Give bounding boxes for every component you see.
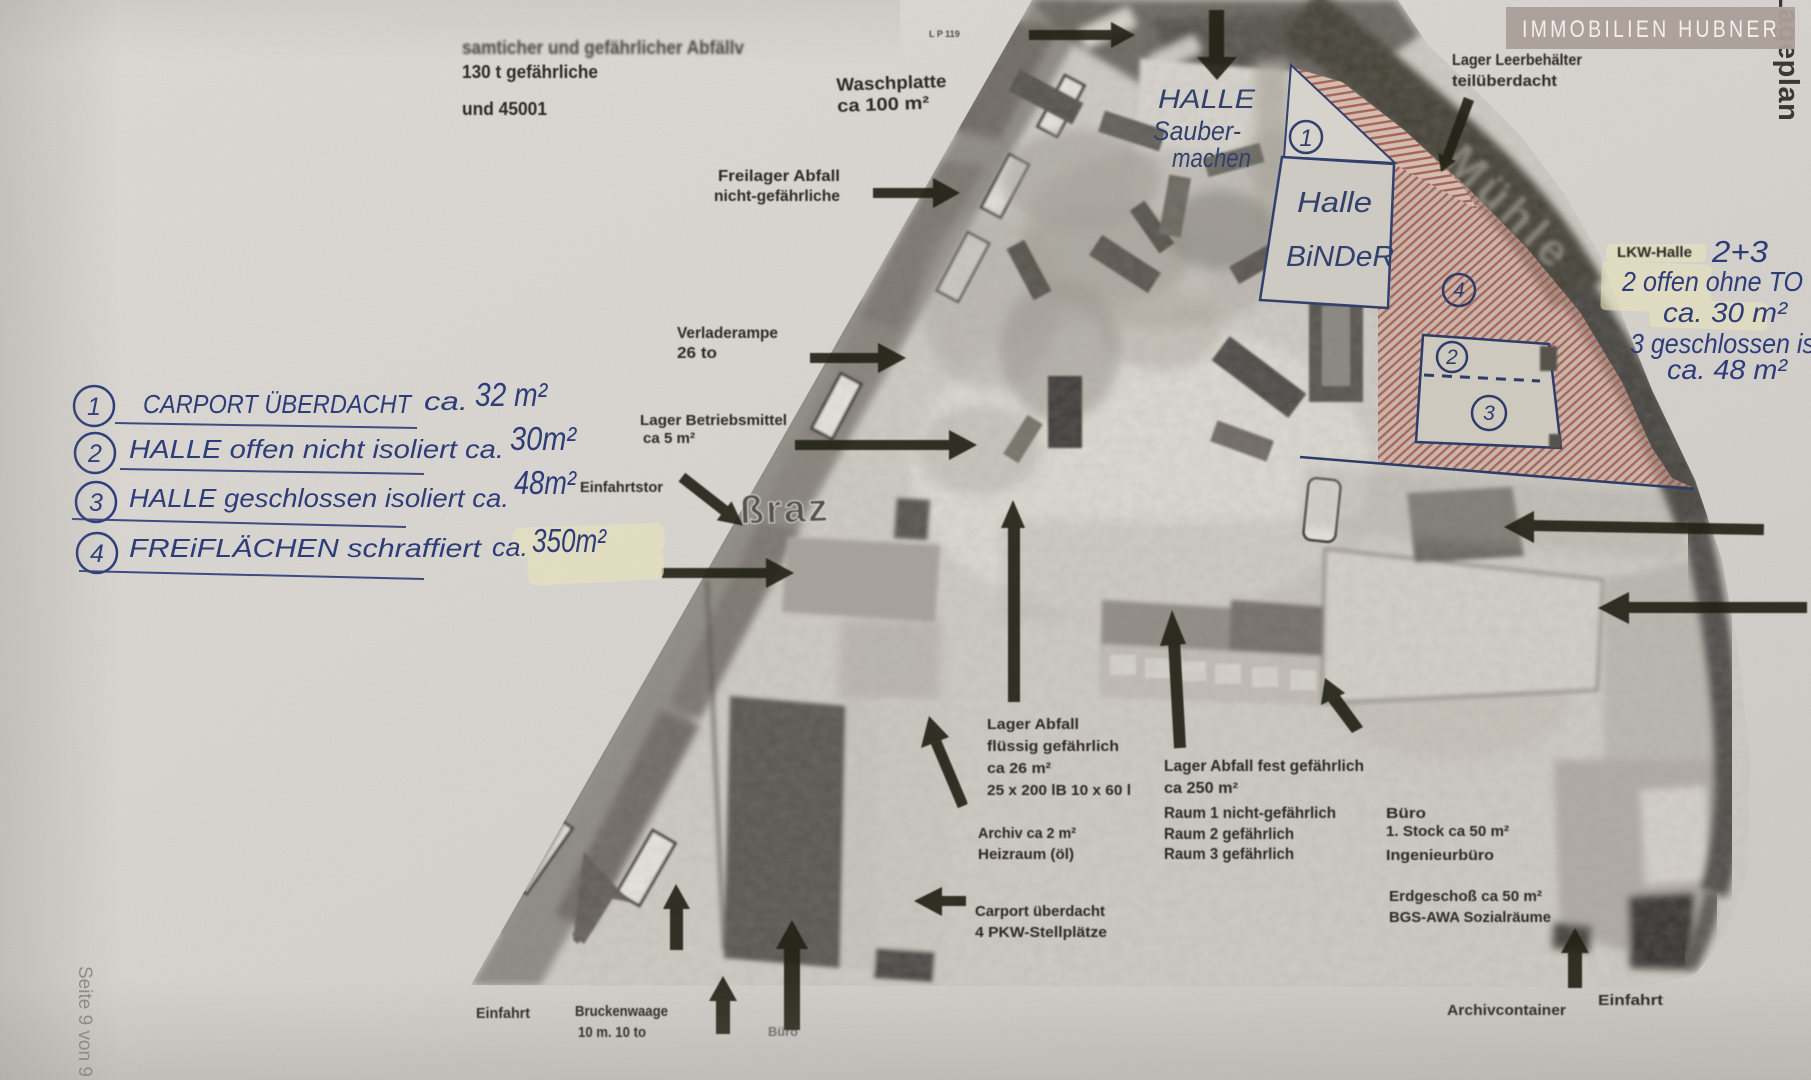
svg-text:teilüberdacht: teilüberdacht	[1452, 73, 1558, 90]
svg-text:2 offen ohne TO: 2 offen ohne TO	[1621, 266, 1803, 297]
svg-text:HALLE geschlossen isoliert ca.: HALLE geschlossen isoliert ca.	[129, 483, 509, 513]
svg-text:ca.: ca.	[424, 386, 468, 416]
svg-text:machen: machen	[1172, 143, 1251, 173]
svg-text:ca. 30 m²: ca. 30 m²	[1663, 297, 1789, 328]
svg-text:flüssig gefährlich: flüssig gefährlich	[987, 738, 1119, 755]
svg-text:BiNDeR: BiNDeR	[1286, 241, 1394, 273]
svg-text:48m²: 48m²	[514, 464, 577, 501]
svg-text:Raum 2 gefährlich: Raum 2 gefährlich	[1164, 826, 1294, 843]
svg-text:Verladerampe: Verladerampe	[677, 325, 778, 342]
svg-text:FREiFLÄCHEN schraffiert: FREiFLÄCHEN schraffiert	[129, 533, 483, 563]
svg-text:Lager Betriebsmittel: Lager Betriebsmittel	[640, 412, 787, 429]
svg-text:130 t gefährliche: 130 t gefährliche	[462, 62, 598, 82]
svg-text:Büro: Büro	[1386, 805, 1426, 822]
svg-text:IMMOBILIEN HUBNER: IMMOBILIEN HUBNER	[1522, 16, 1780, 43]
svg-text:Erdgeschoß ca 50 m²: Erdgeschoß ca 50 m²	[1389, 888, 1542, 905]
svg-text:32 m²: 32 m²	[475, 376, 548, 413]
svg-text:ca 26 m²: ca 26 m²	[987, 760, 1051, 777]
svg-text:2+3: 2+3	[1711, 234, 1768, 269]
svg-text:25 x 200 lB 10 x 60 l: 25 x 200 lB 10 x 60 l	[987, 782, 1131, 799]
svg-text:HALLE offen nicht isoliert ca.: HALLE offen nicht isoliert ca.	[129, 434, 504, 464]
svg-text:ca 250 m²: ca 250 m²	[1164, 780, 1238, 797]
svg-text:Waschplatte: Waschplatte	[836, 71, 947, 95]
svg-text:Raum 3 gefährlich: Raum 3 gefährlich	[1164, 846, 1294, 863]
svg-text:ca.: ca.	[492, 532, 528, 562]
svg-text:ca 100 m²: ca 100 m²	[837, 93, 930, 116]
svg-text:ca 5 m²: ca 5 m²	[643, 430, 695, 447]
svg-text:nicht-gefährliche: nicht-gefährliche	[714, 188, 840, 205]
svg-text:Carport überdacht: Carport überdacht	[975, 903, 1105, 920]
svg-text:und 45001: und 45001	[462, 99, 547, 119]
svg-text:26 to: 26 to	[677, 345, 717, 362]
svg-text:CARPORT ÜBERDACHT: CARPORT ÜBERDACHT	[143, 389, 413, 419]
svg-text:ca. 48 m²: ca. 48 m²	[1667, 354, 1789, 385]
svg-text:3: 3	[1483, 402, 1495, 425]
svg-text:HALLE: HALLE	[1158, 84, 1256, 114]
svg-text:2: 2	[1445, 346, 1458, 369]
svg-text:Lager Abfall fest gefährlich: Lager Abfall fest gefährlich	[1164, 758, 1364, 775]
svg-text:BGS-AWA Sozialräume: BGS-AWA Sozialräume	[1389, 909, 1551, 926]
svg-text:Lager Abfall: Lager Abfall	[987, 716, 1079, 733]
svg-text:Ingenieurbüro: Ingenieurbüro	[1386, 847, 1494, 864]
svg-text:L P 119: L P 119	[929, 29, 960, 39]
svg-text:30m²: 30m²	[510, 420, 577, 457]
svg-text:LKW-Halle: LKW-Halle	[1617, 244, 1692, 261]
svg-text:Archiv ca 2 m²: Archiv ca 2 m²	[978, 825, 1076, 842]
svg-text:Einfahrtstor: Einfahrtstor	[580, 480, 663, 496]
svg-text:Raum 1 nicht-gefährlich: Raum 1 nicht-gefährlich	[1164, 805, 1336, 822]
svg-text:Halle: Halle	[1297, 187, 1372, 219]
svg-text:350m²: 350m²	[532, 522, 607, 559]
svg-text:Sauber-: Sauber-	[1153, 116, 1241, 146]
svg-text:Seite 9 von 9: Seite 9 von 9	[74, 966, 95, 1077]
svg-text:ßraz: ßraz	[739, 486, 831, 533]
svg-text:1. Stock ca 50 m²: 1. Stock ca 50 m²	[1386, 823, 1509, 840]
svg-text:Lager Leerbehälter: Lager Leerbehälter	[1452, 52, 1582, 69]
svg-text:4 PKW-Stellplätze: 4 PKW-Stellplätze	[975, 924, 1107, 941]
svg-text:Heizraum (öl): Heizraum (öl)	[978, 846, 1074, 863]
svg-text:4: 4	[1453, 279, 1465, 302]
svg-text:Freilager Abfall: Freilager Abfall	[718, 168, 840, 185]
svg-text:1: 1	[1299, 125, 1312, 152]
